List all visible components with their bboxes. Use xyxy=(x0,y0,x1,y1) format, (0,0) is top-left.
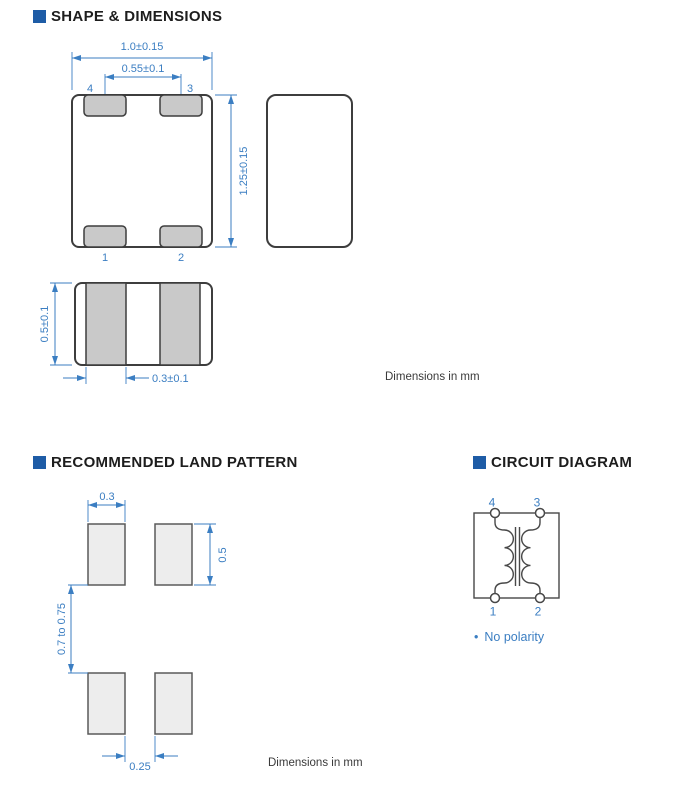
end-view-terminal-band-left xyxy=(86,283,126,365)
circuit-terminal-number-1: 1 xyxy=(490,605,497,619)
dim-land-pad-width: 0.3 xyxy=(88,491,125,522)
terminal-number-1: 1 xyxy=(102,252,108,264)
dim-label-height: 0.5±0.1 xyxy=(39,306,51,343)
land-pad-lower-right xyxy=(155,673,192,734)
end-view-terminal-band-right xyxy=(160,283,200,365)
land-pad-lower-left xyxy=(88,673,125,734)
top-view: 4 3 1 2 xyxy=(72,83,212,264)
dim-label-terminal-pitch: 0.55±0.1 xyxy=(122,63,165,75)
end-view xyxy=(75,283,212,365)
land-pad-upper-left xyxy=(88,524,125,585)
terminal-number-2: 2 xyxy=(178,252,184,264)
terminal-pad-3 xyxy=(160,95,202,116)
circuit-terminal-number-2: 2 xyxy=(535,605,542,619)
side-view xyxy=(267,95,352,247)
dim-height: 0.5±0.1 xyxy=(39,283,72,365)
dim-label-overall-width: 1.0±0.15 xyxy=(121,41,164,53)
dim-terminal-width: 0.3±0.1 xyxy=(63,367,189,385)
terminal-pad-1 xyxy=(84,226,126,247)
datasheet-page: SHAPE & DIMENSIONS RECOMMENDED LAND PATT… xyxy=(0,0,686,797)
circuit-terminal-3 xyxy=(536,509,545,518)
dim-label-land-pad-height: 0.5 xyxy=(217,547,229,562)
top-view-body xyxy=(72,95,212,247)
dim-land-row-gap: 0.7 to 0.75 xyxy=(56,585,88,673)
technical-drawing-canvas: 4 3 1 2 1.0±0.15 0.55±0.1 1.25±0.15 xyxy=(0,0,686,797)
winding-left xyxy=(495,518,513,594)
circuit-terminal-1 xyxy=(491,594,500,603)
dim-label-overall-length: 1.25±0.15 xyxy=(238,147,250,196)
dim-label-terminal-width: 0.3±0.1 xyxy=(152,373,189,385)
dim-land-column-gap: 0.25 xyxy=(102,736,178,773)
winding-right xyxy=(522,518,540,594)
circuit-terminal-number-3: 3 xyxy=(534,496,541,510)
dim-overall-length: 1.25±0.15 xyxy=(215,95,250,247)
circuit-terminal-4 xyxy=(491,509,500,518)
circuit-outline-box xyxy=(474,513,559,598)
land-pad-upper-right xyxy=(155,524,192,585)
terminal-number-3: 3 xyxy=(187,83,193,95)
terminal-pad-4 xyxy=(84,95,126,116)
dim-label-land-row-gap: 0.7 to 0.75 xyxy=(56,603,68,655)
dim-land-pad-height: 0.5 xyxy=(194,524,229,585)
terminal-number-4: 4 xyxy=(87,83,93,95)
side-view-body xyxy=(267,95,352,247)
circuit-terminal-2 xyxy=(536,594,545,603)
dim-label-land-pad-width: 0.3 xyxy=(99,491,114,503)
circuit-terminal-number-4: 4 xyxy=(489,496,496,510)
dim-label-land-column-gap: 0.25 xyxy=(129,761,150,773)
circuit-diagram: 4 3 1 2 xyxy=(474,496,559,619)
terminal-pad-2 xyxy=(160,226,202,247)
land-pattern xyxy=(88,524,192,734)
dim-terminal-pitch: 0.55±0.1 xyxy=(105,63,181,94)
